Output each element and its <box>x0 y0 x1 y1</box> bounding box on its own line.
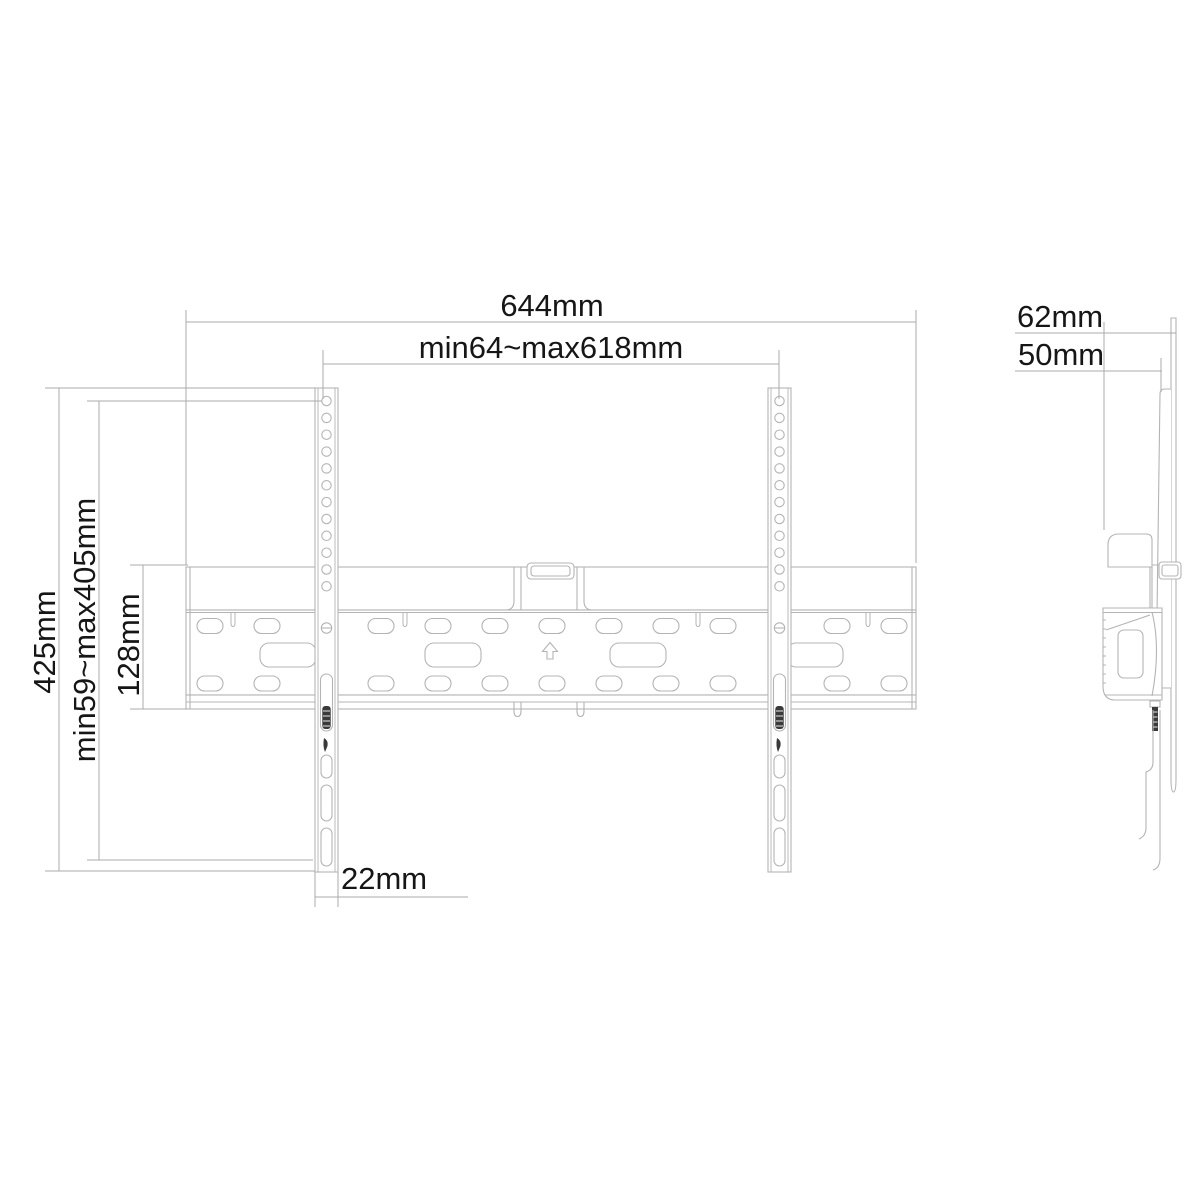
side-lower-profile <box>1139 710 1160 870</box>
dim-label-total-height: 425mm <box>27 590 62 693</box>
right-rail <box>768 388 791 872</box>
side-clip <box>1159 562 1181 579</box>
left-rail <box>315 388 338 872</box>
wall-plate <box>186 563 916 717</box>
side-rail-slab <box>1171 318 1176 792</box>
dim-label-plate-height: 128mm <box>111 593 146 696</box>
dim-vesa-width: min64~max618mm <box>323 330 779 399</box>
dim-label-vesa-height: min59~max405mm <box>67 498 102 762</box>
dim-label-total-width: 644mm <box>500 288 603 323</box>
dim-label-vesa-width: min64~max618mm <box>419 330 683 365</box>
tv-mount-drawing: 644mm min64~max618mm 425mm min59~max405m… <box>0 0 1200 1200</box>
side-plate-body <box>1103 608 1162 700</box>
side-view: 62mm 50mm <box>1015 299 1181 870</box>
dim-total-depth: 62mm <box>1015 299 1176 530</box>
dim-plate-depth: 50mm <box>1015 337 1162 392</box>
dim-label-total-depth: 62mm <box>1017 299 1103 334</box>
side-plate-top-flange <box>1108 534 1160 608</box>
technical-drawing-canvas: 644mm min64~max618mm 425mm min59~max405m… <box>0 0 1200 1200</box>
side-screw <box>1150 701 1160 731</box>
dim-label-rail-width: 22mm <box>341 861 427 896</box>
dim-label-plate-depth: 50mm <box>1018 337 1104 372</box>
front-view: 644mm min64~max618mm 425mm min59~max405m… <box>27 288 916 907</box>
dim-plate-height: 128mm <box>111 565 188 709</box>
